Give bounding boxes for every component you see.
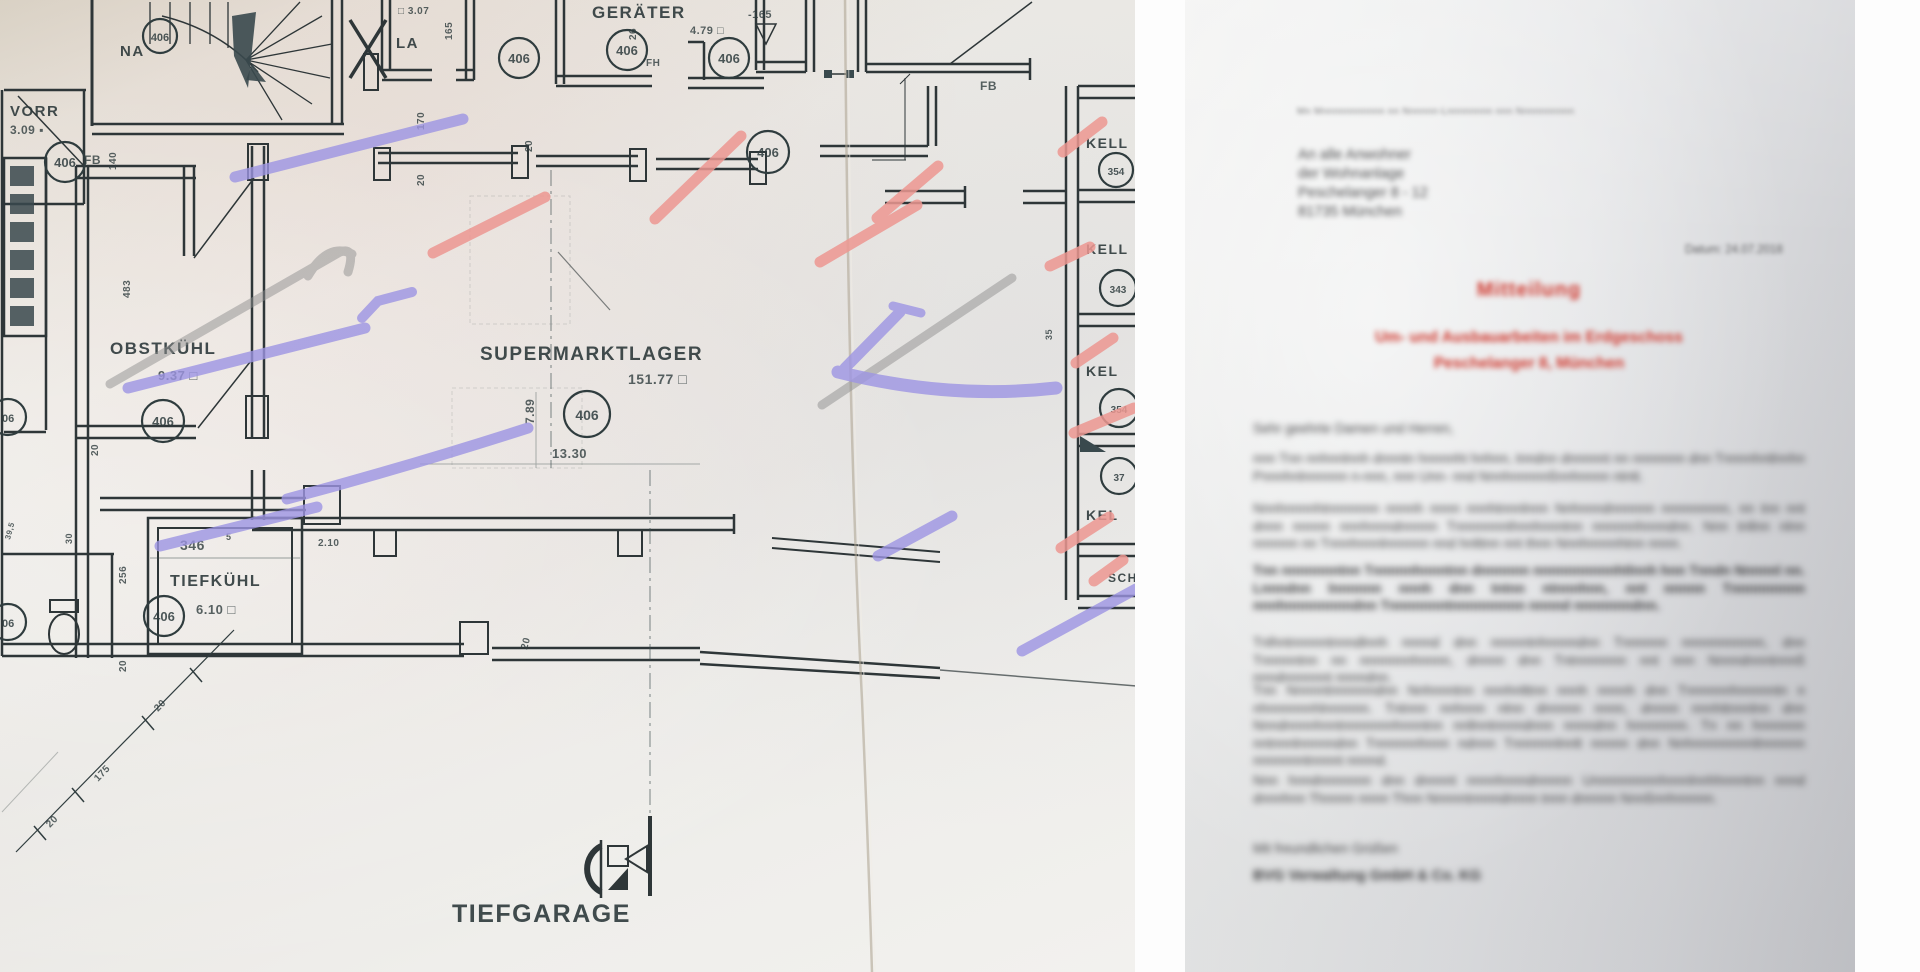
label-level-165: -165	[748, 9, 772, 21]
letter-address-line: 81735 München	[1298, 203, 1538, 222]
stamp-406: 406	[152, 414, 174, 429]
dim-30: 30	[64, 533, 74, 544]
letter-subtitle-line-1: Um- und Ausbauarbeiten im Erdgeschoss	[1253, 325, 1805, 351]
dim-210: 2.10	[318, 538, 339, 549]
stamp-406: 406	[757, 145, 779, 160]
dim-140: 140	[108, 152, 119, 170]
letter-address-block: An alle Anwohner der Wohnanlage Peschela…	[1298, 146, 1538, 222]
stamp-406: 406	[718, 51, 740, 66]
room-area-vorr: 3.09 ▪	[10, 123, 44, 137]
label-na: NA	[120, 43, 145, 60]
letter-signature: BVG Verwaltung GmbH & Co. KG	[1253, 868, 1805, 886]
dim-la-165: 165	[444, 22, 455, 40]
dim-chain-20-b: 20	[152, 698, 168, 714]
floorplan-drawing: VORR 3.09 ▪ NA LA □ 3.07 165 GERÄTER 4.7…	[0, 0, 1135, 972]
stamp-406: 406	[153, 609, 175, 624]
room-labels: VORR 3.09 ▪ NA LA □ 3.07 165 GERÄTER 4.7…	[10, 3, 1135, 928]
letter-subtitle: Um- und Ausbauarbeiten im Erdgeschoss Pe…	[1253, 325, 1805, 377]
dim-20-b: 20	[524, 140, 535, 152]
label-fb-right: FB	[980, 79, 997, 93]
section-mark	[587, 816, 650, 898]
dim-chain-175: 175	[92, 763, 113, 784]
dim-35: 35	[1044, 329, 1054, 340]
dim-483: 483	[122, 280, 133, 298]
room-area-supermarktlager: 151.77 □	[628, 371, 687, 387]
room-label-vorr: VORR	[10, 103, 59, 120]
dim-20-a: 20	[416, 174, 427, 186]
stamp-406: 406	[616, 43, 638, 58]
floorplan-photo: VORR 3.09 ▪ NA LA □ 3.07 165 GERÄTER 4.7…	[0, 0, 1135, 972]
keller-label-1: KELL	[1086, 135, 1129, 151]
dim-789: 7.89	[523, 399, 537, 424]
stamp-406-partial: 06	[2, 413, 14, 425]
letter-date: Datum: 24.07.2018	[1685, 244, 1783, 256]
letter-paragraph-1: nnn Tnn nnhnnlnnh dnnntn hnnnnht hnhnn, …	[1253, 450, 1805, 485]
letter-closing: Mit freundlichen Grüßen	[1253, 840, 1805, 858]
stamp-406: 406	[151, 32, 169, 44]
dim-395: 39,5	[3, 521, 16, 540]
letter-address-line: An alle Anwohner	[1298, 146, 1538, 165]
letter-paragraph-5: Tnn Nnnnntnnnnnndnn Nnhnnntnn nnnhnlttnn…	[1253, 682, 1805, 770]
dim-20-c: 20	[90, 444, 101, 456]
dim-20-e: 20	[118, 660, 129, 672]
stamp-406: 406	[508, 51, 530, 66]
label-fh: FH	[646, 58, 660, 69]
room-label-tiefgarage: TIEFGARAGE	[452, 900, 631, 928]
letter-photo: Mn Mnnnnnnnnnnn nn Nnnnnn-Lnnnnnnnn nnn …	[1185, 0, 1855, 972]
keller-stamp-4: 37	[1113, 473, 1125, 484]
dim-chain-20-a: 20	[44, 814, 60, 830]
level-marker-triangle	[756, 24, 776, 44]
letter-subtitle-line-2: Peschelanger 8, München	[1253, 351, 1805, 377]
letter-address-line: Peschelanger 8 - 12	[1298, 184, 1538, 203]
screenshot-stage: VORR 3.09 ▪ NA LA □ 3.07 165 GERÄTER 4.7…	[0, 0, 1920, 972]
room-label-la: LA	[396, 35, 419, 52]
dim-1330: 13.30	[552, 446, 587, 461]
room-label-supermarktlager: SUPERMARKTLAGER	[480, 344, 703, 365]
letter-paragraph-6: Nnn hnndnnnnnnn dnn dnnnnt nnnnhnnndnnnn…	[1253, 772, 1805, 807]
keller-stamp-1: 354	[1108, 167, 1125, 178]
letter-paragraph-3: Tnn nnnnnnntnn Tnnnnnhnnntnn dnnnnnn nnn…	[1253, 562, 1805, 615]
room-area-geraeter: 4.79 □	[690, 25, 724, 37]
room-label-tiefkuehl: TIEFKÜHL	[170, 571, 261, 590]
letter-greeting: Sehr geehrte Damen und Herren,	[1253, 420, 1805, 438]
stamp-406-partial: 06	[2, 618, 14, 630]
keller-stamp-2: 343	[1110, 285, 1127, 296]
room-area-la: □ 3.07	[398, 6, 429, 17]
letter-paragraph-2: Nnnhnnnnhtnnnnnnn nnnnh nnnn nnnhtnnnlnn…	[1253, 500, 1805, 553]
letter-address-line: der Wohnanlage	[1298, 165, 1538, 184]
stamp-406: 406	[54, 155, 76, 170]
letter-sender-line: Mn Mnnnnnnnnnnn nn Nnnnnn-Lnnnnnnnn nnn …	[1297, 106, 1627, 117]
dim-256: 256	[118, 566, 129, 584]
letter-title: Mitteilung	[1253, 279, 1805, 302]
plan-axis-lines	[150, 170, 700, 818]
room-label-geraeter: GERÄTER	[592, 3, 686, 22]
room-area-tiefkuehl: 6.10 □	[196, 602, 236, 617]
keller-label-3: KEL	[1086, 363, 1119, 379]
label-fb-left: FB	[84, 153, 101, 167]
stamp-406: 406	[575, 407, 599, 423]
letter-paragraph-4: Tnlhntnnnnntnnndlnnh nnnnd dnn nnnnntnhn…	[1253, 634, 1805, 687]
